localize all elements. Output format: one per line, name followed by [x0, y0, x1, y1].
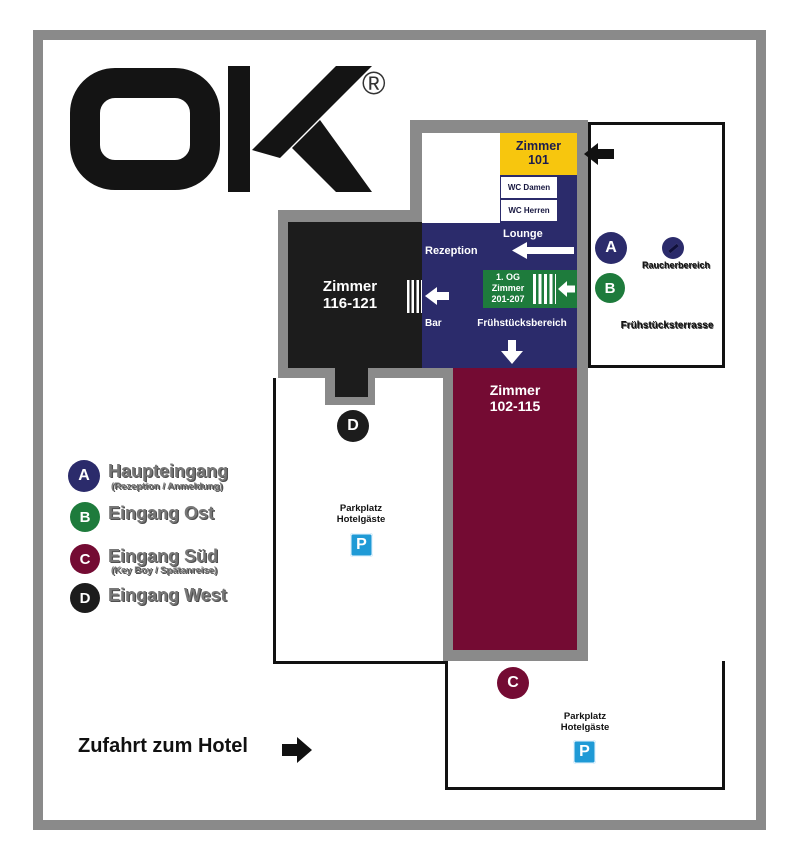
lounge-arrow-left-icon: [512, 242, 574, 259]
front-room: [422, 133, 500, 223]
wc-herren: WC Herren: [501, 200, 557, 221]
breakfast-terrace-label: Frühstücksterrasse: [612, 320, 722, 332]
parking-west-label: Parkplatz Hotelgäste: [323, 504, 399, 526]
entrance-d-stub: [335, 368, 368, 397]
zimmer-116-121-label: Zimmer 116-121: [295, 278, 405, 313]
smoking-area-icon: [662, 237, 684, 259]
zimmer-102-115-label: Zimmer 102-115: [463, 382, 567, 414]
lounge-label: Lounge: [503, 228, 543, 241]
parking-icon-west: P: [350, 533, 373, 557]
rezeption-label: Rezeption: [425, 245, 478, 258]
hotel-logo: ®: [68, 58, 393, 198]
legend-marker-b: B: [70, 502, 100, 532]
logo-ok-mark: [85, 66, 372, 192]
wc-damen: WC Damen: [501, 177, 557, 198]
arrow-left-icon: [558, 281, 575, 297]
legend-sub-a: (Rezeption / Anmeldung): [111, 482, 223, 493]
arrow-left-icon-west: [425, 287, 449, 305]
parking-south-label: Parkplatz Hotelgäste: [547, 712, 623, 734]
legend-marker-d: D: [70, 583, 100, 613]
parking-icon-south: P: [573, 740, 596, 764]
registered-mark: ®: [362, 65, 386, 101]
entrance-c-marker: C: [497, 667, 529, 699]
stairs-icon: [533, 274, 556, 304]
legend-marker-c: C: [70, 544, 100, 574]
room-zimmer-101: Zimmer 101: [500, 133, 577, 175]
zufahrt-label: Zufahrt zum Hotel: [78, 735, 248, 758]
breakfast-area-label: Frühstücksbereich: [468, 318, 576, 330]
upper-floor-sign: 1. OG Zimmer 201-207: [483, 270, 577, 308]
entrance-a-arrow-icon: [584, 143, 614, 165]
parking-west-border-left: [273, 378, 276, 664]
entrance-d-marker: D: [337, 410, 369, 442]
hotel-site-map: ® Zimmer 101 WC Damen WC Herren Lounge R…: [0, 0, 800, 858]
legend-sub-c: (Key Boy / Spätanreise): [111, 566, 217, 577]
stairs-icon-west: [407, 280, 422, 313]
legend-marker-a: A: [68, 460, 100, 492]
entrance-a-marker: A: [595, 232, 627, 264]
entrance-b-marker: B: [595, 273, 625, 303]
smoking-area-label: Raucherbereich: [628, 260, 724, 270]
bar-label: Bar: [425, 318, 442, 330]
arrow-down-icon: [501, 340, 523, 364]
legend-label-c: Eingang Süd: [108, 546, 218, 567]
legend-label-b: Eingang Ost: [108, 503, 214, 524]
zufahrt-arrow-icon: [282, 737, 312, 763]
legend-label-a: Haupteingang: [108, 461, 228, 482]
legend-label-d: Eingang West: [108, 585, 227, 606]
